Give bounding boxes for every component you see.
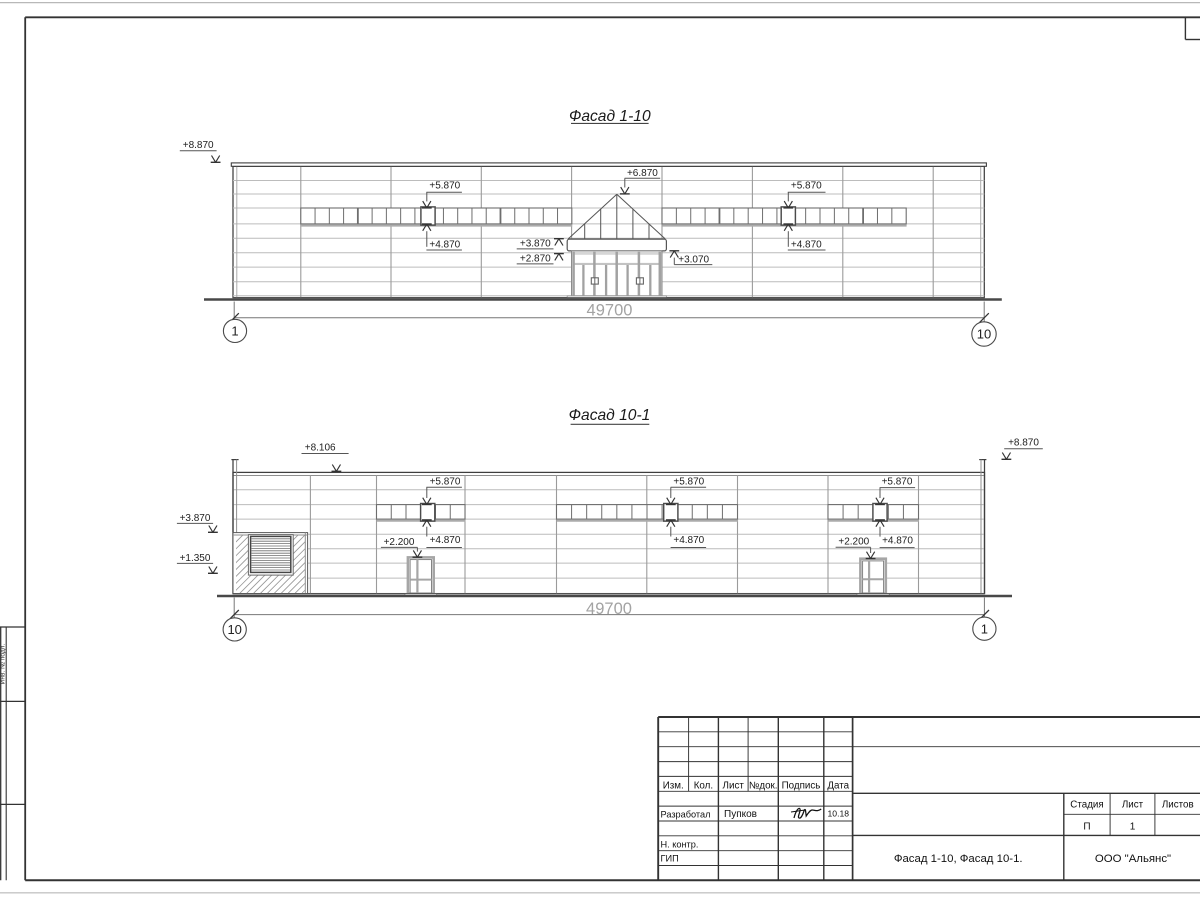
- svg-text:Стадия: Стадия: [1070, 800, 1103, 811]
- svg-text:10: 10: [977, 327, 991, 342]
- svg-text:+8.870: +8.870: [1008, 438, 1039, 449]
- svg-text:+5.870: +5.870: [882, 477, 913, 488]
- svg-text:Разработал: Разработал: [661, 810, 711, 820]
- svg-text:+4.870: +4.870: [673, 535, 704, 546]
- svg-text:+4.870: +4.870: [882, 536, 913, 547]
- svg-text:Фасад 10-1: Фасад 10-1: [569, 407, 651, 424]
- svg-text:49700: 49700: [587, 301, 633, 319]
- svg-text:№док.: №док.: [749, 780, 778, 791]
- svg-text:49700: 49700: [586, 600, 632, 618]
- svg-text:ГИП: ГИП: [661, 853, 679, 863]
- svg-text:+1.350: +1.350: [180, 553, 211, 564]
- svg-text:+8.106: +8.106: [305, 443, 336, 454]
- svg-text:Дата: Дата: [827, 780, 849, 791]
- svg-text:10.18: 10.18: [828, 809, 850, 819]
- svg-text:Лист: Лист: [723, 780, 745, 791]
- svg-text:Фасад 1-10, Фасад 10-1.: Фасад 1-10, Фасад 10-1.: [894, 853, 1023, 865]
- svg-text:+3.870: +3.870: [180, 513, 211, 524]
- svg-text:+5.870: +5.870: [791, 181, 822, 192]
- svg-text:+2.200: +2.200: [384, 537, 415, 548]
- svg-text:+6.870: +6.870: [627, 168, 658, 179]
- svg-text:+3.070: +3.070: [678, 254, 709, 265]
- svg-text:Фасад 1-10: Фасад 1-10: [569, 108, 651, 125]
- svg-text:+4.870: +4.870: [430, 535, 461, 546]
- svg-text:Инв. № подл.: Инв. № подл.: [0, 644, 7, 685]
- svg-text:+3.870: +3.870: [520, 238, 551, 249]
- svg-text:Н. контр.: Н. контр.: [661, 839, 699, 849]
- svg-text:1: 1: [1130, 822, 1136, 833]
- svg-text:П: П: [1083, 822, 1090, 833]
- svg-text:+4.870: +4.870: [791, 240, 822, 251]
- svg-text:+5.870: +5.870: [430, 476, 461, 487]
- svg-text:Подпись: Подпись: [782, 780, 821, 791]
- svg-text:+8.870: +8.870: [183, 140, 214, 151]
- svg-text:+5.870: +5.870: [673, 476, 704, 487]
- svg-text:1: 1: [981, 621, 988, 636]
- svg-text:+2.200: +2.200: [838, 537, 869, 548]
- svg-text:+4.870: +4.870: [429, 240, 460, 251]
- svg-text:Кол.: Кол.: [694, 780, 713, 791]
- svg-text:Лист: Лист: [1122, 800, 1144, 811]
- svg-text:Пупков: Пупков: [724, 809, 757, 820]
- svg-text:+2.870: +2.870: [520, 253, 551, 264]
- svg-text:Листов: Листов: [1162, 800, 1194, 811]
- svg-text:+5.870: +5.870: [429, 181, 460, 192]
- svg-text:10: 10: [227, 622, 241, 637]
- svg-text:Изм.: Изм.: [663, 780, 684, 791]
- svg-text:ООО "Альянс": ООО "Альянс": [1095, 853, 1171, 865]
- svg-text:1: 1: [231, 324, 238, 339]
